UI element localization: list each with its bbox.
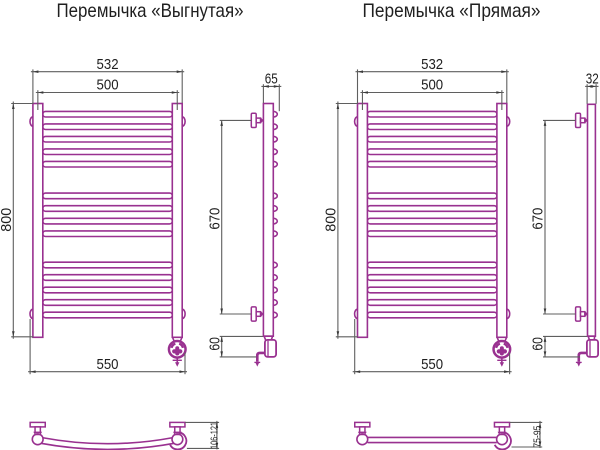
svg-text:670: 670 <box>531 208 547 230</box>
svg-text:532: 532 <box>421 57 443 73</box>
svg-text:Перемычка «Прямая»: Перемычка «Прямая» <box>363 0 541 22</box>
svg-text:Перемычка «Выгнутая»: Перемычка «Выгнутая» <box>57 0 244 22</box>
svg-text:500: 500 <box>421 78 443 94</box>
svg-text:800: 800 <box>324 208 340 232</box>
svg-text:75-95: 75-95 <box>533 425 544 447</box>
svg-text:60: 60 <box>531 337 547 351</box>
svg-text:550: 550 <box>97 357 119 373</box>
svg-text:532: 532 <box>97 57 119 73</box>
svg-text:500: 500 <box>97 78 119 94</box>
svg-text:65: 65 <box>265 71 278 87</box>
svg-text:106-121: 106-121 <box>210 422 221 449</box>
svg-text:670: 670 <box>207 208 223 230</box>
svg-text:550: 550 <box>421 357 443 373</box>
svg-text:32: 32 <box>586 71 599 87</box>
svg-text:60: 60 <box>207 337 223 351</box>
svg-text:800: 800 <box>0 208 15 232</box>
